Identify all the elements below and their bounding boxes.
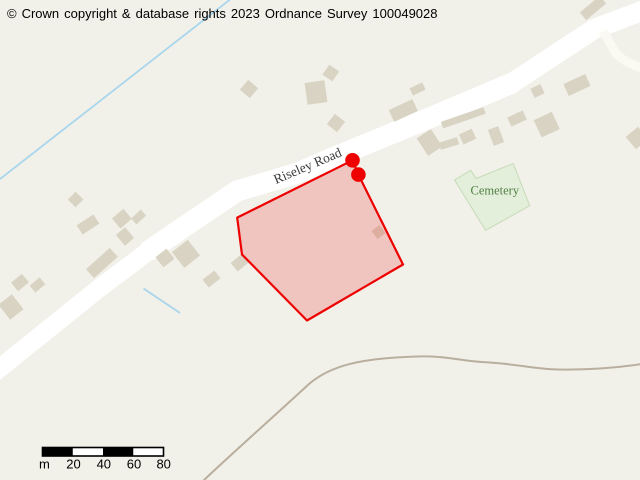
svg-text:Cemetery: Cemetery: [471, 184, 520, 198]
svg-text:© Crown copyright & database r: © Crown copyright & database rights 2023…: [7, 6, 438, 21]
svg-text:m: m: [39, 457, 50, 472]
svg-text:20: 20: [66, 457, 80, 472]
svg-text:60: 60: [127, 457, 141, 472]
svg-text:80: 80: [156, 457, 170, 472]
svg-text:40: 40: [97, 457, 111, 472]
